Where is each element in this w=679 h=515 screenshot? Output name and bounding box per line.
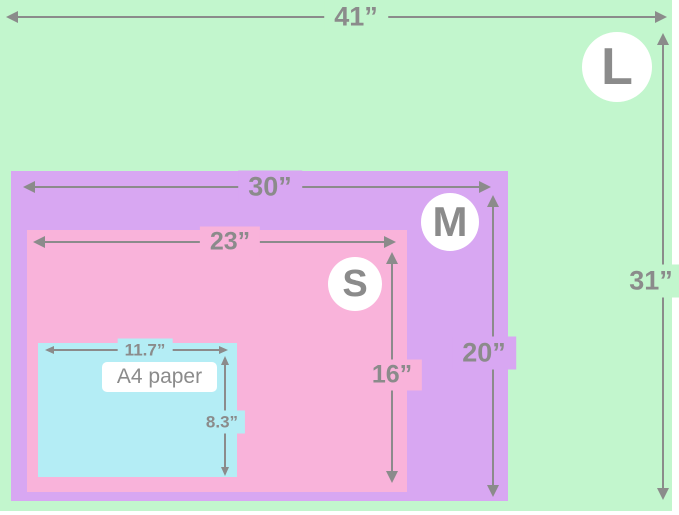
size-badge-large: L xyxy=(582,32,652,102)
height-arrow-small: 16” xyxy=(385,252,399,483)
a4-paper-tag: A4 paper xyxy=(102,362,217,392)
size-letter-small: S xyxy=(342,265,367,303)
width-label-large: 41” xyxy=(324,1,388,34)
width-label-small: 23” xyxy=(200,227,260,258)
size-badge-medium: M xyxy=(421,193,479,251)
width-arrow-small: 23” xyxy=(33,235,396,249)
a4-paper-tag-text: A4 paper xyxy=(117,365,202,389)
height-label-medium: 20” xyxy=(452,337,516,370)
width-label-medium: 30” xyxy=(238,171,302,204)
height-arrow-a4: 8.3” xyxy=(218,356,232,476)
arrow-head-right-icon xyxy=(219,346,228,354)
arrow-head-down-icon xyxy=(657,488,669,500)
height-arrow-medium: 20” xyxy=(486,195,500,497)
width-label-a4: 11.7” xyxy=(118,339,173,362)
size-letter-large: L xyxy=(601,41,633,93)
size-comparison-diagram: 41” 31” 30” 20” 23” 16” 11 xyxy=(0,0,679,515)
arrow-head-right-icon xyxy=(479,181,491,193)
width-arrow-medium: 30” xyxy=(23,180,491,194)
arrow-head-right-icon xyxy=(655,11,667,23)
arrow-head-up-icon xyxy=(657,33,669,45)
width-arrow-large: 41” xyxy=(6,10,667,24)
size-letter-medium: M xyxy=(433,201,468,243)
height-label-a4: 8.3” xyxy=(199,411,245,434)
height-arrow-large: 31” xyxy=(656,33,670,500)
arrow-head-right-icon xyxy=(384,236,396,248)
arrow-head-up-icon xyxy=(221,356,229,365)
arrow-head-left-icon xyxy=(23,181,35,193)
width-arrow-a4: 11.7” xyxy=(45,343,228,357)
height-label-small: 16” xyxy=(362,360,422,391)
arrow-head-down-icon xyxy=(386,471,398,483)
arrow-head-down-icon xyxy=(487,485,499,497)
arrow-head-down-icon xyxy=(221,467,229,476)
arrow-head-up-icon xyxy=(487,195,499,207)
arrow-head-left-icon xyxy=(33,236,45,248)
size-badge-small: S xyxy=(328,257,382,311)
height-label-large: 31” xyxy=(619,265,679,298)
arrow-head-left-icon xyxy=(45,346,54,354)
arrow-head-up-icon xyxy=(386,252,398,264)
arrow-head-left-icon xyxy=(6,11,18,23)
